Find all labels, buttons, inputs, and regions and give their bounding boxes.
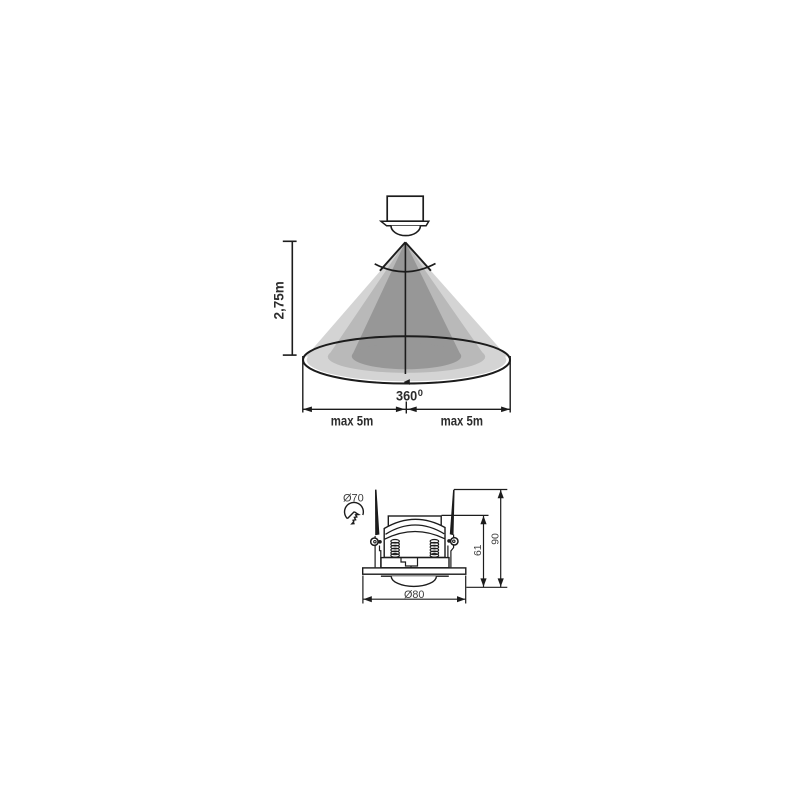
- svg-text:360: 360: [396, 389, 417, 405]
- svg-text:0: 0: [418, 388, 423, 398]
- svg-text:61: 61: [473, 544, 484, 556]
- svg-text:Ø80: Ø80: [404, 589, 424, 601]
- svg-text:90: 90: [490, 533, 501, 545]
- svg-text:max 5m: max 5m: [331, 413, 373, 429]
- svg-text:max 5m: max 5m: [441, 413, 483, 429]
- svg-text:2,75m: 2,75m: [271, 281, 287, 319]
